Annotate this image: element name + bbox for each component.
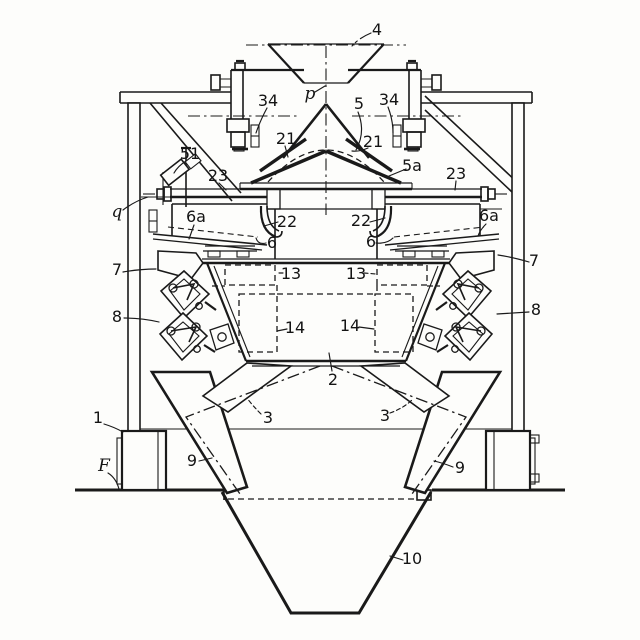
hammer-mechanism-right: [436, 251, 494, 360]
post-right: [512, 103, 524, 431]
side-bolt-head-right: [432, 75, 441, 90]
ref-label-3-right: 3: [380, 406, 390, 425]
ref-label-3-left: 3: [263, 408, 273, 427]
foundation-left: [122, 431, 166, 490]
ref-label-22-left: 22: [277, 212, 297, 231]
ref-label-5: 5: [354, 94, 364, 113]
ref-label-14-right: 14: [340, 316, 360, 335]
housing-wall-right: [409, 70, 421, 119]
ref-label-5a: 5a: [402, 156, 422, 175]
separating-bowl-2: [202, 259, 450, 366]
ref-label-p: p: [305, 84, 316, 104]
post-left: [128, 103, 140, 431]
leader-p: [315, 86, 325, 92]
patent-drawing-page: 4 p 5 34 34 21 21 5a 51 23 23 q 6a 6a 22…: [0, 0, 640, 640]
ref-label-51: 51: [180, 144, 200, 163]
ref-label-34-left: 34: [258, 91, 278, 110]
discharge-chutes-9: [152, 363, 500, 493]
flange-tab-left: [210, 324, 234, 350]
discharge-funnel-10: [222, 492, 431, 613]
housing-wall-left: [231, 70, 243, 119]
leader-14-right: [359, 327, 374, 329]
ref-label-6a-left: 6a: [186, 207, 206, 226]
leader-6-left: [256, 238, 266, 243]
ref-label-4: 4: [372, 20, 382, 39]
top-beam-left: [120, 92, 231, 103]
ref-label-1: 1: [93, 408, 103, 427]
ref-label-7-left: 7: [112, 260, 122, 279]
trough-right: [385, 204, 480, 236]
ref-label-q: q: [112, 202, 123, 222]
leg-left: [203, 363, 291, 412]
ref-label-21-right: 21: [363, 132, 383, 151]
suspension-34-right: [393, 119, 425, 151]
ref-label-8-left: 8: [112, 307, 122, 326]
hidden-part-13-right: [377, 265, 427, 285]
suspension-34-left: [227, 119, 259, 151]
ref-label-13-right: 13: [346, 264, 366, 283]
hammer-upper-right: [443, 271, 491, 318]
leader-6-right: [376, 238, 393, 243]
hammer-lower-left: [160, 313, 207, 360]
ref-label-23-left: 23: [208, 166, 228, 185]
hidden-part-13-left: [225, 265, 275, 285]
ref-label-34-right: 34: [379, 90, 399, 109]
leader-3-left: [247, 398, 261, 414]
hammer-upper-left: [161, 271, 209, 318]
leader-34-right: [388, 107, 393, 133]
ref-label-21-left: 21: [276, 129, 296, 148]
ref-label-23-right: 23: [446, 164, 466, 183]
ref-label-9-right: 9: [455, 458, 465, 477]
patent-figure-canvas: 4 p 5 34 34 21 21 5a 51 23 23 q 6a 6a 22…: [0, 0, 640, 640]
foundation-right: [486, 431, 530, 490]
ground-and-pit: [75, 490, 565, 500]
collar-right: [372, 189, 385, 209]
rail-bolt-right: [488, 189, 495, 199]
side-bolt-head-left: [211, 75, 220, 90]
ref-label-9-left: 9: [187, 451, 197, 470]
ref-label-7-right: 7: [529, 251, 539, 270]
spout-22-right: [376, 206, 391, 237]
ref-label-14-left: 14: [285, 318, 305, 337]
leader-1: [104, 424, 123, 432]
ref-label-2: 2: [328, 370, 338, 389]
ref-label-6a-right: 6a: [479, 206, 499, 225]
leader-6a-left: [189, 225, 194, 239]
flange-tab-right: [418, 324, 442, 350]
ref-label-10: 10: [402, 549, 422, 568]
ref-label-13-left: 13: [281, 264, 301, 283]
ref-label-6-right: 6: [366, 232, 376, 251]
ref-label-6-left: 6: [267, 233, 277, 252]
top-beam-right: [421, 92, 532, 103]
hammer-lower-right: [445, 313, 492, 360]
leg-right: [361, 363, 449, 412]
ref-label-F: F: [97, 456, 111, 476]
hammer-mechanism-left: [158, 251, 216, 360]
ref-label-8-right: 8: [531, 300, 541, 319]
leader-34-left: [256, 108, 267, 133]
brace-right: [425, 96, 519, 192]
ref-label-22-right: 22: [351, 211, 371, 230]
collar-left: [267, 189, 280, 209]
